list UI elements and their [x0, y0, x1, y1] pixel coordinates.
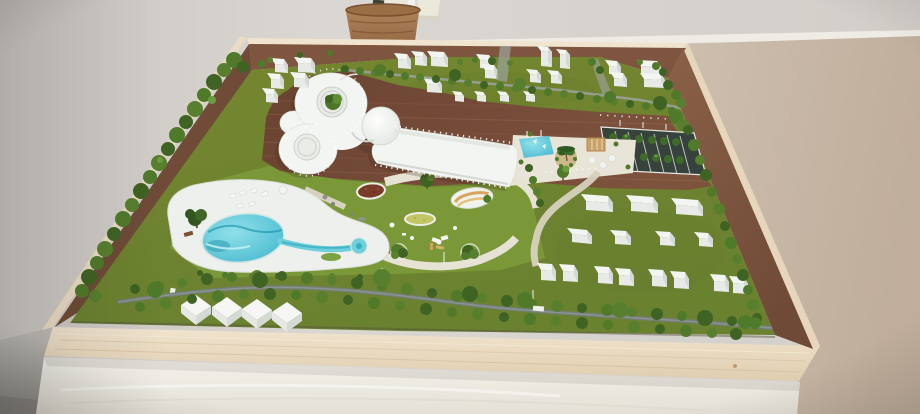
scene-canvas [0, 0, 920, 414]
photo-architectural-model [0, 0, 920, 414]
left-edge-shade [0, 0, 920, 414]
